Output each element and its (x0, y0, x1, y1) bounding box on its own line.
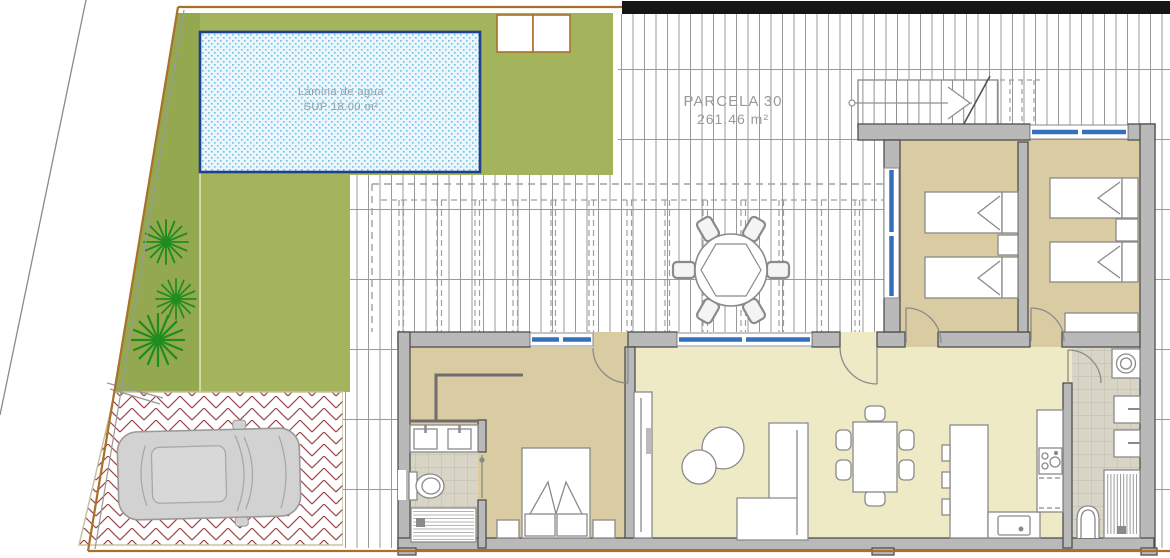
wall-sink (1114, 430, 1140, 457)
toilet (1077, 506, 1099, 538)
twin-bed (1050, 178, 1138, 218)
dining-chair (836, 430, 851, 450)
nightstand (593, 520, 615, 538)
toilet (409, 472, 444, 500)
dining-chair (865, 406, 885, 421)
swimming-pool: Lámina de agua SUP 18.00 m² (200, 32, 480, 172)
garden-planters (497, 15, 570, 52)
stair-start-marker (849, 100, 855, 106)
nightstand (497, 520, 519, 538)
nightstand (1116, 219, 1138, 241)
twin-bed (925, 257, 1018, 298)
master-bedroom-window (530, 333, 593, 346)
pouf (682, 450, 716, 484)
twin-bed (925, 192, 1018, 233)
living-room-window (677, 333, 812, 346)
dining-chair (865, 491, 885, 506)
pool-label-line1: Lámina de agua (298, 86, 384, 98)
wall-sink (1114, 396, 1140, 423)
bedroom1-window (884, 168, 899, 298)
dining-chair (899, 460, 914, 480)
stove (1039, 448, 1062, 474)
nightstand (998, 235, 1018, 255)
tree-icon (144, 220, 188, 264)
parcel-area: 261.46 m² (697, 111, 769, 127)
shower (411, 508, 476, 542)
tv-unit (634, 392, 652, 538)
car-roof (151, 446, 226, 504)
neighbor-wall (622, 1, 1170, 14)
pergola-overhang (372, 184, 886, 332)
bar-stool (942, 445, 950, 461)
pool-label-line2: SUP 18.00 m² (304, 101, 379, 113)
tree-icon (132, 314, 184, 366)
double-bed (522, 448, 590, 538)
dining-chair (836, 460, 851, 480)
kitchen-counter (950, 425, 988, 538)
bar-stool (942, 499, 950, 515)
road-edge (0, 0, 86, 415)
outdoor-table (695, 234, 767, 306)
washing-machine (1112, 349, 1140, 378)
dresser (1065, 313, 1138, 332)
dining-table (853, 422, 897, 492)
bar-stool (942, 472, 950, 488)
dining-chair (899, 430, 914, 450)
car (117, 419, 302, 530)
twin-bed (1050, 242, 1138, 282)
bedroom2-window (1030, 125, 1128, 139)
car-mirror (235, 517, 248, 526)
floor-plan-canvas: Lámina de agua SUP 18.00 m² (0, 0, 1170, 558)
water-heater (1104, 470, 1140, 538)
kitchen-sink (998, 516, 1030, 535)
site-plan: Lámina de agua SUP 18.00 m² (0, 0, 1170, 558)
tree-icon (156, 279, 196, 319)
parcel-name: PARCELA 30 (684, 93, 783, 110)
car-mirror (233, 420, 246, 429)
